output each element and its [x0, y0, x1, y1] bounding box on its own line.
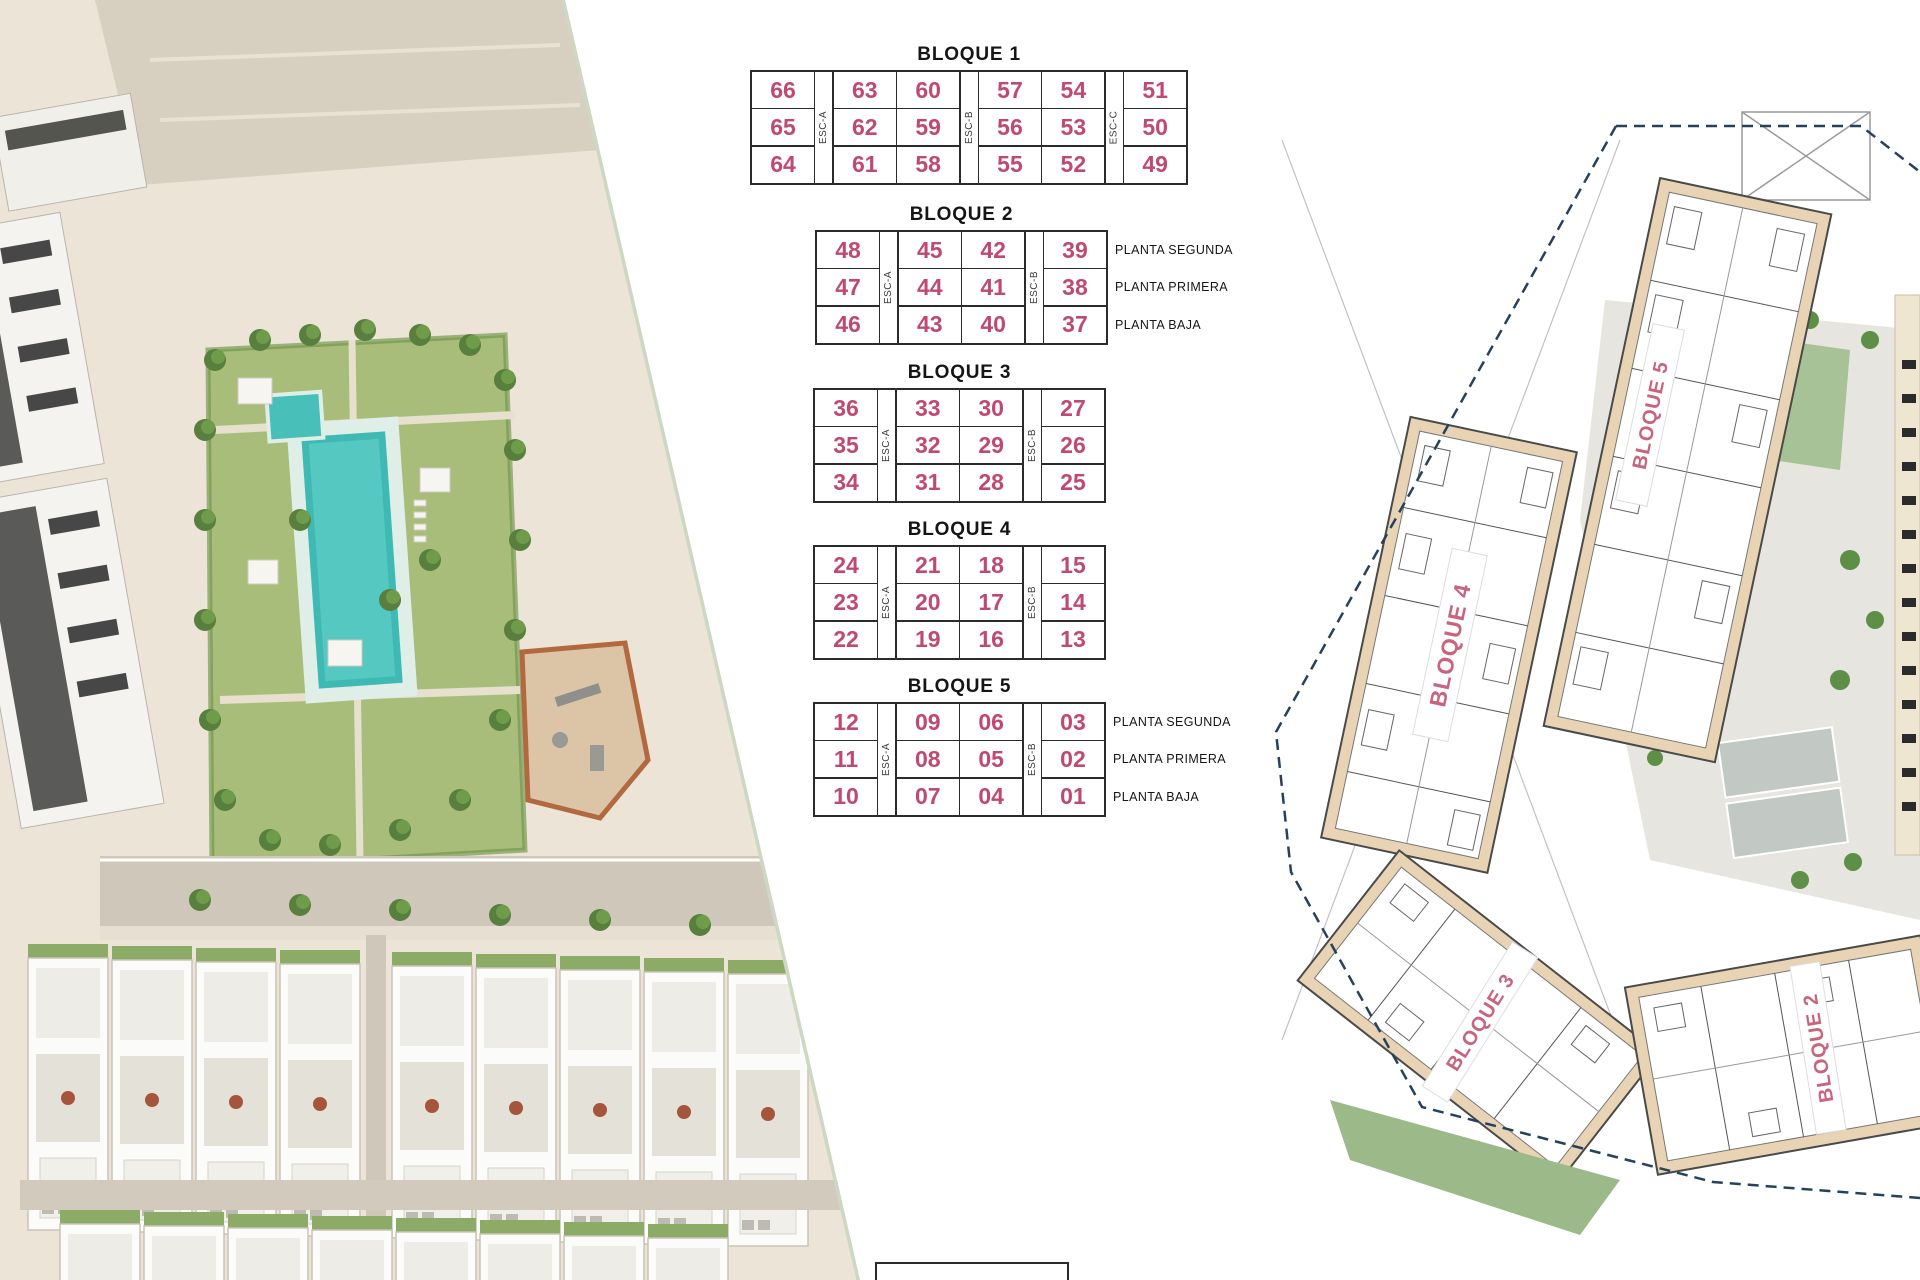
unit-cell: 22	[815, 622, 877, 658]
unit-cell: 03	[1042, 704, 1104, 740]
plan-building-bloque-2	[1625, 935, 1920, 1174]
block-2: BLOQUE 2484746ESC-A454443424140ESC-B3938…	[815, 204, 1108, 345]
legend-box	[875, 1262, 1069, 1280]
unit-cell: 17	[960, 584, 1022, 620]
unit-cell: 40	[962, 307, 1024, 343]
unit-cell: 06	[960, 704, 1022, 740]
unit-cell: 54	[1042, 72, 1104, 108]
unit-cell: 25	[1042, 465, 1104, 501]
unit-cell: 57	[979, 72, 1041, 108]
escalera-label: ESC-A	[818, 111, 829, 144]
escalera-label: ESC-B	[964, 111, 975, 144]
unit-cell: 41	[962, 269, 1024, 305]
unit-cell: 58	[897, 147, 959, 183]
unit-cell: 52	[1042, 147, 1104, 183]
block-4: BLOQUE 4242322ESC-A212019181716ESC-B1514…	[813, 519, 1106, 660]
unit-cell: 35	[815, 427, 877, 463]
unit-cell: 63	[834, 72, 896, 108]
block-title: BLOQUE 5	[813, 676, 1106, 698]
escalera-cell: ESC-B	[1026, 232, 1043, 343]
unit-cell: 28	[960, 465, 1022, 501]
unit-cell: 30	[960, 390, 1022, 426]
escalera-cell: ESC-A	[880, 232, 897, 343]
aerial-render	[0, 0, 870, 1280]
unit-cell: 44	[899, 269, 961, 305]
unit-cell: 34	[815, 465, 877, 501]
escalera-label: ESC-A	[881, 743, 892, 776]
block-title: BLOQUE 4	[813, 519, 1106, 541]
escalera-label: ESC-B	[1027, 743, 1038, 776]
unit-cell: 48	[817, 232, 879, 268]
unit-table: 484746ESC-A454443424140ESC-B393837	[815, 230, 1108, 345]
unit-cell: 62	[834, 109, 896, 145]
site-plan: BLOQUE 5 BLOQUE 4	[1150, 0, 1920, 1280]
unit-cell: 32	[897, 427, 959, 463]
escalera-cell: ESC-B	[1024, 704, 1041, 815]
unit-cell: 04	[960, 779, 1022, 815]
unit-cell: 33	[897, 390, 959, 426]
unit-cell: 13	[1042, 622, 1104, 658]
unit-cell: 26	[1042, 427, 1104, 463]
unit-cell: 09	[897, 704, 959, 740]
unit-cell: 14	[1042, 584, 1104, 620]
unit-cell: 45	[899, 232, 961, 268]
unit-cell: 66	[752, 72, 814, 108]
escalera-label: ESC-C	[1109, 111, 1120, 145]
render-road	[100, 856, 860, 940]
block-title: BLOQUE 1	[750, 44, 1188, 66]
unit-cell: 01	[1042, 779, 1104, 815]
escalera-label: ESC-B	[1027, 586, 1038, 619]
escalera-label: ESC-A	[881, 586, 892, 619]
unit-cell: 43	[899, 307, 961, 343]
unit-cell: 05	[960, 741, 1022, 777]
brochure-page: BLOQUE 1666564ESC-A636261605958ESC-B5756…	[0, 0, 1920, 1280]
unit-cell: 27	[1042, 390, 1104, 426]
escalera-cell: ESC-A	[878, 390, 895, 501]
escalera-cell: ESC-A	[878, 547, 895, 658]
unit-table: 242322ESC-A212019181716ESC-B151413	[813, 545, 1106, 660]
escalera-cell: ESC-A	[878, 704, 895, 815]
unit-cell: 39	[1044, 232, 1106, 268]
unit-cell: 53	[1042, 109, 1104, 145]
unit-cell: 46	[817, 307, 879, 343]
escalera-label: ESC-A	[881, 429, 892, 462]
unit-table: 363534ESC-A333231302928ESC-B272625	[813, 388, 1106, 503]
escalera-label: ESC-B	[1029, 271, 1040, 304]
block-title: BLOQUE 3	[813, 362, 1106, 384]
unit-cell: 18	[960, 547, 1022, 583]
unit-cell: 42	[962, 232, 1024, 268]
unit-cell: 37	[1044, 307, 1106, 343]
unit-cell: 19	[897, 622, 959, 658]
plan-right-wall	[1895, 295, 1920, 855]
unit-cell: 60	[897, 72, 959, 108]
block-1: BLOQUE 1666564ESC-A636261605958ESC-B5756…	[750, 44, 1188, 185]
unit-cell: 21	[897, 547, 959, 583]
unit-cell: 47	[817, 269, 879, 305]
unit-cell: 23	[815, 584, 877, 620]
escalera-cell: ESC-B	[1024, 390, 1041, 501]
block-3: BLOQUE 3363534ESC-A333231302928ESC-B2726…	[813, 362, 1106, 503]
unit-cell: 02	[1042, 741, 1104, 777]
unit-cell: 11	[815, 741, 877, 777]
unit-cell: 38	[1044, 269, 1106, 305]
unit-cell: 65	[752, 109, 814, 145]
escalera-cell: ESC-B	[1024, 547, 1041, 658]
unit-table: 666564ESC-A636261605958ESC-B575655545352…	[750, 70, 1188, 185]
unit-cell: 12	[815, 704, 877, 740]
unit-cell: 31	[897, 465, 959, 501]
render-clip-group	[0, 0, 870, 1280]
block-title: BLOQUE 2	[815, 204, 1108, 226]
unit-cell: 15	[1042, 547, 1104, 583]
unit-table: 121110ESC-A090807060504ESC-B030201	[813, 702, 1106, 817]
unit-cell: 36	[815, 390, 877, 426]
unit-cell: 56	[979, 109, 1041, 145]
escalera-label: ESC-A	[883, 271, 894, 304]
block-5: BLOQUE 5121110ESC-A090807060504ESC-B0302…	[813, 676, 1106, 817]
escalera-cell: ESC-C	[1106, 72, 1123, 183]
render-townhouses	[20, 935, 860, 1280]
unit-cell: 24	[815, 547, 877, 583]
unit-cell: 07	[897, 779, 959, 815]
unit-cell: 29	[960, 427, 1022, 463]
escalera-label: ESC-B	[1027, 429, 1038, 462]
unit-cell: 10	[815, 779, 877, 815]
unit-cell: 20	[897, 584, 959, 620]
unit-cell: 59	[897, 109, 959, 145]
unit-cell: 61	[834, 147, 896, 183]
unit-cell: 16	[960, 622, 1022, 658]
escalera-cell: ESC-A	[815, 72, 832, 183]
escalera-cell: ESC-B	[961, 72, 978, 183]
unit-cell: 08	[897, 741, 959, 777]
unit-cell: 64	[752, 147, 814, 183]
unit-cell: 55	[979, 147, 1041, 183]
